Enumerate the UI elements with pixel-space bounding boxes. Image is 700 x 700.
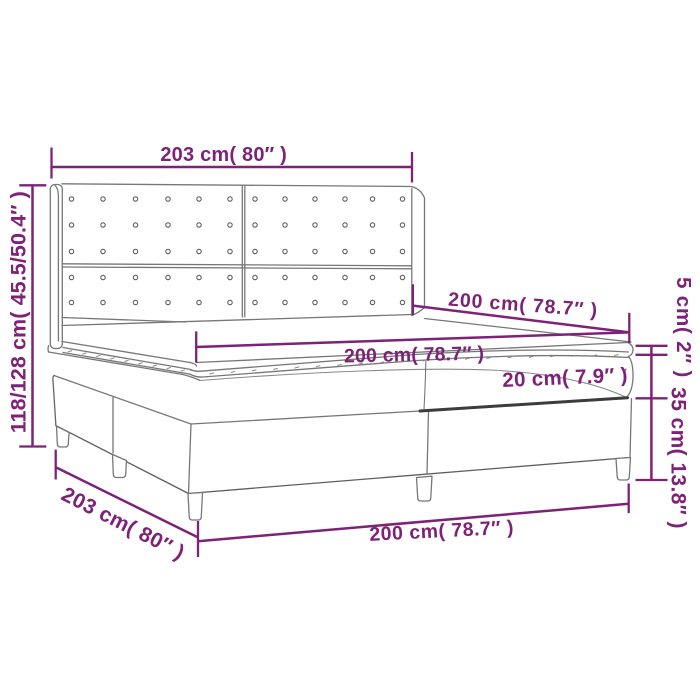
svg-text:203 cm( 80″ ): 203 cm( 80″ ) xyxy=(160,144,287,166)
svg-text:35 cm( 13.8″ ): 35 cm( 13.8″ ) xyxy=(667,387,690,529)
svg-text:200 cm( 78.7″ ): 200 cm( 78.7″ ) xyxy=(344,343,485,368)
svg-text:5 cm( 2″ ): 5 cm( 2″ ) xyxy=(672,277,695,378)
svg-text:118/128 cm( 45.5/50.4″ ): 118/128 cm( 45.5/50.4″ ) xyxy=(7,191,31,433)
